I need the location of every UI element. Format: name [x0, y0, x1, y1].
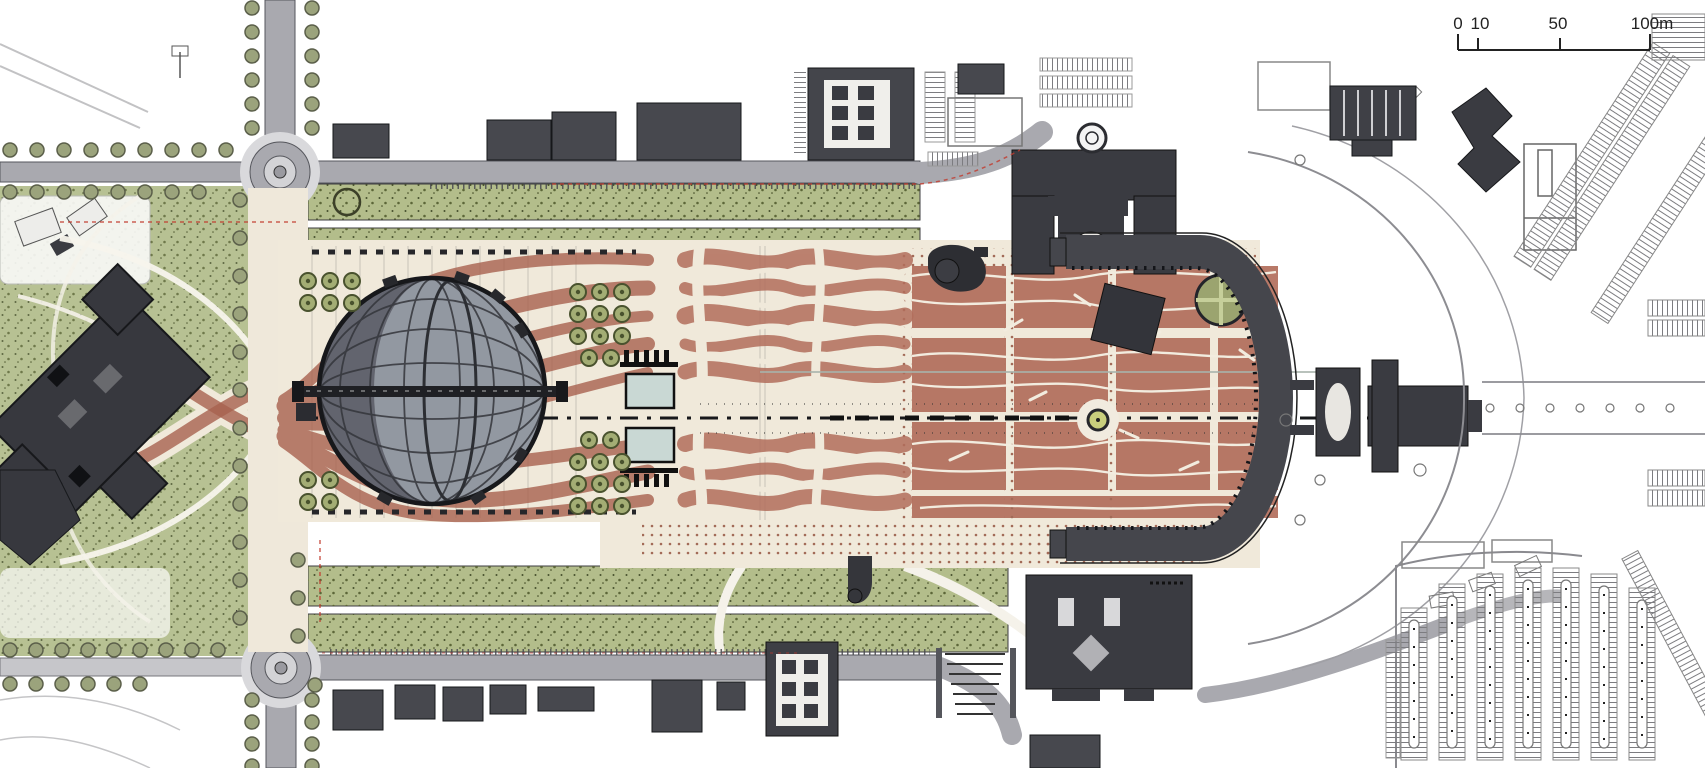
west-entry-pylon — [296, 403, 316, 421]
north-avenue — [265, 0, 295, 146]
cross-walk — [816, 244, 821, 522]
west-road-north — [0, 162, 252, 182]
angled-dark-building — [1452, 88, 1520, 192]
south-monument — [1026, 575, 1192, 701]
masterplan-drawing: 0 10 50 100m — [0, 0, 1705, 768]
dark-roof-building — [1330, 86, 1416, 156]
chapel — [1368, 360, 1482, 472]
site-plan-canvas: 0 10 50 100m — [0, 0, 1705, 768]
parking-rows — [1401, 568, 1655, 760]
pool-north — [626, 374, 674, 408]
south-lawn-band — [308, 566, 1052, 652]
scale-bar: 0 10 50 100m — [1453, 14, 1673, 50]
northeast-parking — [1514, 14, 1705, 506]
east-gate-pavilion — [1290, 368, 1360, 456]
scale-label-10: 10 — [1471, 14, 1490, 33]
west-road-south — [0, 658, 252, 676]
scale-label-0: 0 — [1453, 14, 1462, 33]
axial-fountain — [1077, 399, 1119, 441]
north-cloister-building — [794, 68, 914, 160]
north-lawn-band — [308, 184, 920, 242]
south-cloister-building — [766, 642, 838, 736]
parking-row — [925, 72, 945, 142]
pool-south — [626, 428, 674, 462]
northeast-buildings — [1258, 62, 1576, 250]
top-road — [298, 161, 920, 183]
scale-label-100m: 100m — [1631, 14, 1674, 33]
cupola — [1078, 124, 1106, 152]
cross-walk — [698, 244, 703, 522]
southeast-parking — [1386, 540, 1705, 768]
bottom-road — [300, 655, 940, 680]
scale-label-50: 50 — [1549, 14, 1568, 33]
